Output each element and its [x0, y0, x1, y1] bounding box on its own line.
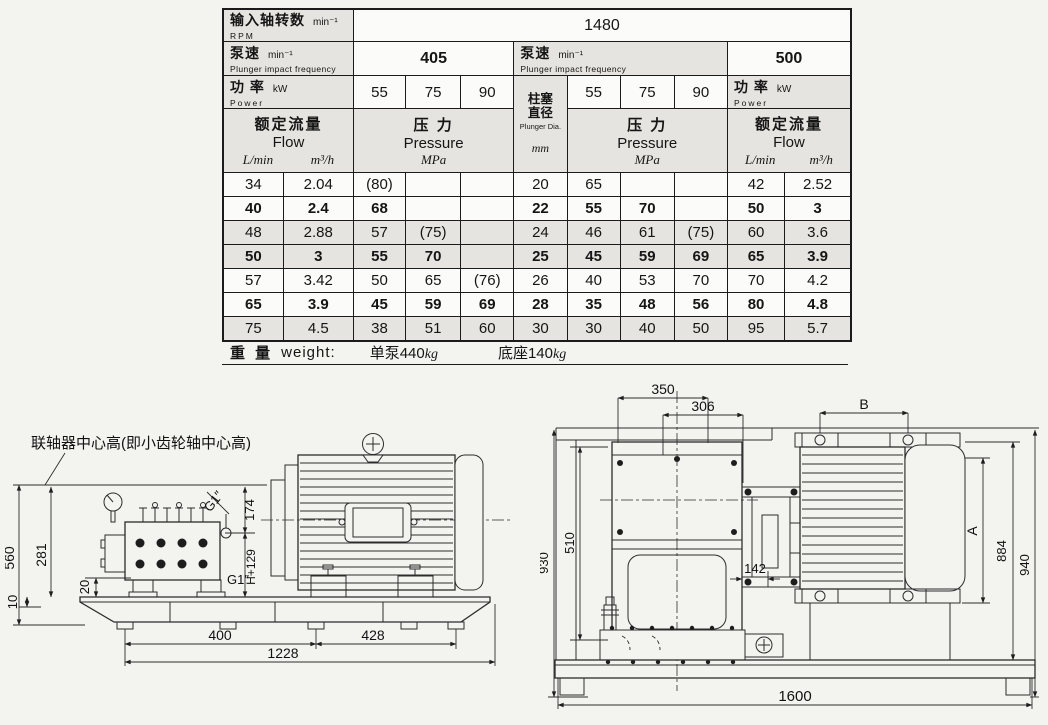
- spec-cell: 34: [223, 173, 283, 197]
- spec-cell: 53: [620, 269, 674, 293]
- spec-cell: 28: [514, 293, 567, 317]
- spec-cell: 24: [514, 221, 567, 245]
- spec-cell: 65: [567, 173, 620, 197]
- power-left-cell: 功 率kW Power: [223, 76, 353, 109]
- power-col: 75: [406, 76, 461, 109]
- flow-right-unit2: m³/h: [810, 152, 833, 168]
- spec-cell: [461, 173, 514, 197]
- rpm-value: 1480: [353, 9, 851, 42]
- spec-cell: [461, 245, 514, 269]
- power-col: 75: [620, 76, 674, 109]
- coupling-height-callout: 联轴器中心高(即小齿轮轴中心高): [31, 435, 251, 452]
- spec-cell: 50: [674, 317, 727, 342]
- spec-cell: 69: [674, 245, 727, 269]
- pressure-right-header: 压 力 Pressure MPa: [567, 109, 727, 173]
- spec-cell: 20: [514, 173, 567, 197]
- spec-row: 482.88 57(75) 24 4661 (75)60 3.6: [223, 221, 851, 245]
- spec-cell: 2.04: [283, 173, 353, 197]
- rpm-label-zh: 输入轴转数: [230, 10, 305, 30]
- spec-cell: 5.7: [785, 317, 851, 342]
- spec-cell: (75): [674, 221, 727, 245]
- dim-10: 10: [5, 595, 20, 609]
- rpm-unit: min⁻¹: [313, 17, 338, 28]
- spec-cell: [406, 197, 461, 221]
- spec-cell: 4.5: [283, 317, 353, 342]
- spec-row: 653.9 4559 6928 3548 5680 4.8: [223, 293, 851, 317]
- dim-B: B: [859, 396, 868, 412]
- datasheet-page: 输入轴转数min⁻¹ RPM 1480 泵速min⁻¹ Plunger impa…: [0, 0, 1048, 725]
- dim-281: 281: [33, 543, 49, 567]
- spec-cell: 30: [514, 317, 567, 342]
- spec-cell: 46: [567, 221, 620, 245]
- spec-row: 503 5570 25 4559 6965 3.9: [223, 245, 851, 269]
- spec-cell: (75): [406, 221, 461, 245]
- spec-cell: 3: [283, 245, 353, 269]
- spec-cell: 75: [223, 317, 283, 342]
- valve-stems: [139, 503, 207, 523]
- pump-body: [125, 522, 220, 580]
- spec-cell: 3.42: [283, 269, 353, 293]
- spec-cell: 40: [620, 317, 674, 342]
- power-col: 55: [567, 76, 620, 109]
- spec-cell: 61: [620, 221, 674, 245]
- spec-cell: 2.4: [283, 197, 353, 221]
- terminal-box: [339, 503, 417, 542]
- spec-cell: 45: [353, 293, 405, 317]
- spec-cell: 55: [353, 245, 405, 269]
- spec-cell: 25: [514, 245, 567, 269]
- spec-row: 573.42 5065 (76)26 4053 7070 4.2: [223, 269, 851, 293]
- plunger-zh1: 柱塞: [514, 92, 566, 106]
- spec-cell: (76): [461, 269, 514, 293]
- spec-cell: 65: [406, 269, 461, 293]
- spec-cell: 3: [785, 197, 851, 221]
- flow-right-unit1: L/min: [745, 152, 775, 168]
- spec-cell: 3.9: [785, 245, 851, 269]
- dim-g1-top: G1″: [201, 488, 227, 515]
- pressure-right-unit: MPa: [568, 152, 727, 168]
- weight-pump-unit: kg: [425, 347, 438, 362]
- spec-row: 754.5 3851 6030 3040 5095 5.7: [223, 317, 851, 342]
- spec-cell: 50: [353, 269, 405, 293]
- spec-cell: 40: [223, 197, 283, 221]
- pump-bolts: [136, 539, 208, 569]
- power-right-unit: kW: [777, 84, 791, 95]
- spec-cell: 65: [727, 245, 784, 269]
- spec-table: 输入轴转数min⁻¹ RPM 1480 泵速min⁻¹ Plunger impa…: [222, 8, 852, 342]
- spec-cell: 57: [223, 269, 283, 293]
- lifting-eye-icon: [363, 434, 384, 463]
- spec-cell: 4.8: [785, 293, 851, 317]
- spec-cell: [674, 197, 727, 221]
- pressure-right-en: Pressure: [568, 135, 727, 152]
- flow-left-header: 额定流量 Flow L/minm³/h: [223, 109, 353, 173]
- rpm-header-cell: 输入轴转数min⁻¹ RPM: [223, 9, 353, 42]
- power-col: 90: [674, 76, 727, 109]
- pump-speed-left-cell: 泵速min⁻¹ Plunger impact frequency: [223, 42, 353, 76]
- spec-cell: 30: [567, 317, 620, 342]
- spec-cell: [461, 221, 514, 245]
- spec-cell: 70: [727, 269, 784, 293]
- power-left-unit: kW: [273, 84, 287, 95]
- pressure-left-zh: 压 力: [354, 114, 513, 135]
- dim-142: 142: [744, 561, 766, 576]
- spec-cell: 38: [353, 317, 405, 342]
- weight-pump: 单泵440: [370, 345, 425, 362]
- rpm-label-en: RPM: [230, 31, 353, 41]
- power-right-en: Power: [734, 98, 850, 108]
- spec-cell: 69: [461, 293, 514, 317]
- spec-cell: [620, 173, 674, 197]
- plunger-en: Plunger Dia.: [514, 122, 566, 131]
- pump-speed-right-en: Plunger impact frequency: [520, 64, 727, 74]
- spec-cell: 3.9: [283, 293, 353, 317]
- spec-cell: 55: [567, 197, 620, 221]
- spec-cell: 51: [406, 317, 461, 342]
- dim-510: 510: [562, 532, 577, 554]
- spec-cell: 70: [674, 269, 727, 293]
- spec-cell: 70: [406, 245, 461, 269]
- spec-cell: 3.6: [785, 221, 851, 245]
- pump-speed-right-zh: 泵速: [520, 43, 550, 63]
- spec-cell: 40: [567, 269, 620, 293]
- spec-rows: 342.04 (80) 20 65 42 2.52 402.4 68 22 55…: [223, 173, 851, 342]
- dim-428: 428: [361, 627, 385, 643]
- power-left-zh: 功 率: [230, 77, 265, 97]
- pressure-right-zh: 压 力: [568, 114, 727, 135]
- flow-left-zh: 额定流量: [224, 113, 353, 134]
- pressure-left-en: Pressure: [354, 135, 513, 152]
- flow-right-header: 额定流量 Flow L/minm³/h: [727, 109, 851, 173]
- spec-cell: 48: [620, 293, 674, 317]
- pump-speed-left-zh: 泵速: [230, 43, 260, 63]
- flow-left-en: Flow: [224, 134, 353, 151]
- power-right-cell: 功 率kW Power: [727, 76, 851, 109]
- left-drawing: 联轴器中心高(即小齿轮轴中心高): [5, 418, 535, 718]
- pressure-left-unit: MPa: [354, 152, 513, 168]
- stand-frame: [556, 428, 1039, 660]
- dim-884: 884: [994, 540, 1009, 562]
- power-left-en: Power: [230, 98, 353, 108]
- spec-cell: 59: [620, 245, 674, 269]
- dim-940: 940: [1017, 554, 1032, 576]
- spec-cell: 70: [620, 197, 674, 221]
- spec-cell: 59: [406, 293, 461, 317]
- dim-306: 306: [691, 398, 715, 414]
- pump-speed-left-unit: min⁻¹: [268, 50, 293, 61]
- flow-left-unit1: L/min: [243, 152, 273, 168]
- spec-cell: 56: [674, 293, 727, 317]
- dim-A: A: [964, 526, 980, 536]
- spec-cell: 26: [514, 269, 567, 293]
- pump-speed-left-en: Plunger impact frequency: [230, 64, 353, 74]
- spec-row: 342.04 (80) 20 65 42 2.52: [223, 173, 851, 197]
- spec-cell: 4.2: [785, 269, 851, 293]
- fluid-end-manifold: [600, 597, 783, 664]
- weight-base-unit: kg: [553, 347, 566, 362]
- right-drawing: 350 306 B 930 510 142 A 884 940: [540, 383, 1048, 725]
- spec-cell: 50: [223, 245, 283, 269]
- motor-feet: [311, 565, 433, 597]
- flow-left-unit2: m³/h: [311, 152, 334, 168]
- dim-20: 20: [77, 580, 92, 594]
- callout-leader-line: [45, 453, 65, 485]
- plunger-dia-header: 柱塞 直径 Plunger Dia. mm: [514, 76, 567, 173]
- pump-speed-left-value: 405: [353, 42, 513, 76]
- spec-cell: 48: [223, 221, 283, 245]
- spec-cell: 50: [727, 197, 784, 221]
- power-col: 55: [353, 76, 405, 109]
- motor-pedestal: [810, 603, 950, 660]
- power-right-zh: 功 率: [734, 77, 769, 97]
- spec-cell: 60: [727, 221, 784, 245]
- dim-560: 560: [5, 546, 17, 570]
- spec-row: 402.4 68 22 5570 50 3: [223, 197, 851, 221]
- pump-speed-right-unit: min⁻¹: [558, 50, 583, 61]
- spec-cell: 22: [514, 197, 567, 221]
- weight-label-en: weight:: [281, 344, 336, 361]
- spec-cell: 95: [727, 317, 784, 342]
- pressure-left-header: 压 力 Pressure MPa: [353, 109, 513, 173]
- dim-930: 930: [540, 552, 551, 574]
- spec-cell: [674, 173, 727, 197]
- flow-right-en: Flow: [728, 134, 850, 151]
- spec-cell: 2.88: [283, 221, 353, 245]
- motor-end-view: [795, 433, 965, 660]
- spec-cell: (80): [353, 173, 405, 197]
- spec-cell: 65: [223, 293, 283, 317]
- spec-cell: [461, 197, 514, 221]
- pump-speed-right-value: 500: [727, 42, 851, 76]
- spec-cell: 35: [567, 293, 620, 317]
- dim-1600: 1600: [778, 688, 811, 705]
- weight-row: 重 量 weight: 单泵440kg 底座140kg: [222, 341, 848, 365]
- weight-base: 底座140: [498, 345, 553, 362]
- dim-400: 400: [208, 627, 232, 643]
- power-col: 90: [461, 76, 514, 109]
- spec-cell: [406, 173, 461, 197]
- spec-cell: 80: [727, 293, 784, 317]
- base-frame: [80, 597, 490, 629]
- dim-350: 350: [651, 383, 675, 397]
- pump-speed-right-cell: 泵速min⁻¹ Plunger impact frequency: [514, 42, 728, 76]
- motor-fins: [802, 455, 903, 581]
- plunger-unit: mm: [514, 141, 566, 156]
- motor-side-view: [271, 434, 483, 598]
- spec-cell: 60: [461, 317, 514, 342]
- dim-174: 174: [242, 499, 257, 521]
- flow-right-zh: 额定流量: [728, 113, 850, 134]
- weight-label-zh: 重 量: [230, 342, 273, 363]
- dim-1228: 1228: [267, 645, 298, 661]
- dim-g1-side: G1″: [227, 572, 249, 587]
- plunger-zh2: 直径: [514, 106, 566, 120]
- spec-cell: 57: [353, 221, 405, 245]
- spec-cell: 68: [353, 197, 405, 221]
- spec-cell: 2.52: [785, 173, 851, 197]
- spec-cell: 45: [567, 245, 620, 269]
- spec-cell: 42: [727, 173, 784, 197]
